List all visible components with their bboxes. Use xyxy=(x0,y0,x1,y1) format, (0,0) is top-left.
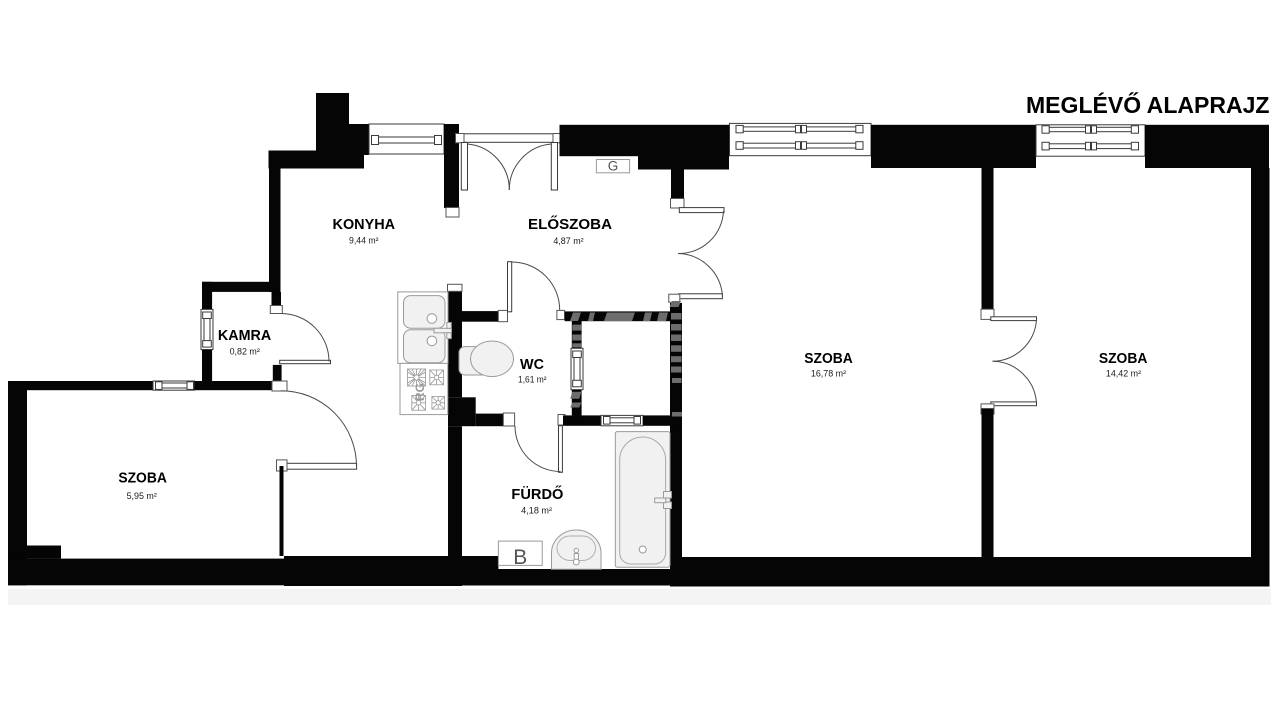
svg-text:ELŐSZOBA: ELŐSZOBA xyxy=(528,215,612,233)
svg-text:MEGLÉVŐ ALAPRAJZ: MEGLÉVŐ ALAPRAJZ xyxy=(1026,91,1270,118)
svg-text:KONYHA: KONYHA xyxy=(333,217,396,233)
svg-text:5,95 m²: 5,95 m² xyxy=(127,491,157,501)
svg-text:B: B xyxy=(513,546,527,569)
svg-text:9,44 m²: 9,44 m² xyxy=(349,235,379,245)
svg-text:SZOBA: SZOBA xyxy=(118,471,167,487)
svg-text:WC: WC xyxy=(520,357,544,373)
svg-text:RG: RG xyxy=(413,383,427,401)
svg-text:G: G xyxy=(608,158,619,173)
svg-text:KAMRA: KAMRA xyxy=(218,328,271,344)
svg-text:4,18 m²: 4,18 m² xyxy=(521,506,552,516)
svg-text:1,61 m²: 1,61 m² xyxy=(518,375,547,385)
svg-text:14,42 m²: 14,42 m² xyxy=(1106,369,1141,379)
svg-text:SZOBA: SZOBA xyxy=(804,351,853,367)
svg-text:FÜRDŐ: FÜRDŐ xyxy=(511,485,563,503)
svg-text:0,82 m²: 0,82 m² xyxy=(230,347,260,357)
svg-text:SZOBA: SZOBA xyxy=(1099,351,1148,367)
svg-text:16,78 m²: 16,78 m² xyxy=(811,369,846,379)
svg-text:4,87 m²: 4,87 m² xyxy=(553,236,583,246)
